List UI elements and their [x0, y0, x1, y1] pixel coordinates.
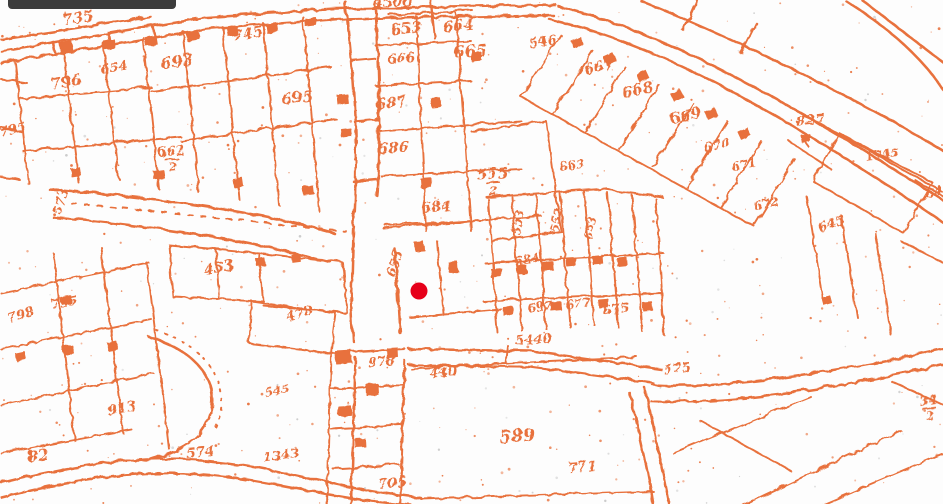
scan-speckle [504, 295, 506, 297]
scan-speckle [872, 170, 874, 172]
scan-speckle [13, 499, 15, 501]
scan-speckle [522, 70, 525, 73]
scan-speckle [723, 260, 725, 262]
scan-speckle [598, 247, 600, 249]
scan-speckle [184, 258, 185, 259]
scan-speckle [191, 487, 192, 488]
building-footprint [430, 97, 440, 106]
scan-speckle [725, 73, 726, 74]
building-footprint [70, 167, 80, 176]
building-footprint [704, 107, 716, 118]
scan-speckle [232, 253, 234, 255]
scan-speckle [676, 277, 678, 279]
scan-speckle [893, 402, 895, 404]
scan-speckle [312, 240, 313, 241]
scan-speckle [763, 417, 765, 419]
parcel-number-label: 664 [441, 15, 474, 36]
scan-speckle [762, 292, 765, 295]
scan-speckle [677, 481, 679, 483]
scan-speckle [288, 172, 289, 173]
scan-speckle [549, 53, 552, 56]
scan-speckle [686, 392, 688, 394]
scan-speckle [174, 273, 176, 275]
scan-speckle [422, 320, 425, 323]
parcel-number-label: 655 [383, 248, 406, 278]
cadastral-map-image[interactable]: 7357456936547967956954500653664665666546… [0, 0, 943, 504]
scan-speckle [78, 362, 80, 364]
scan-speckle [325, 113, 328, 116]
parcel-number: 669 [668, 103, 703, 127]
scan-speckle [364, 202, 366, 204]
scan-speckle [876, 290, 878, 292]
scan-speckle [277, 476, 280, 479]
parcel-number: 695 [280, 86, 313, 107]
scan-speckle [539, 222, 540, 223]
scan-speckle [761, 313, 762, 314]
parcel-number: 545 [263, 381, 290, 399]
scan-speckle [807, 64, 810, 67]
scan-speckle [55, 422, 58, 425]
parcel-number-label: 978 [367, 353, 395, 370]
scan-speckle [764, 47, 765, 48]
scan-speckle [481, 254, 483, 256]
scan-speckle [283, 270, 286, 273]
building-footprint [566, 257, 576, 266]
parcel-number-label: 545 [263, 381, 290, 399]
parcel-number: 677 [564, 294, 591, 311]
scan-speckle [659, 387, 661, 389]
scan-speckle [344, 422, 346, 424]
parcel-number: 453 [201, 255, 235, 278]
scan-speckle [167, 326, 168, 327]
scan-speckle [774, 367, 776, 369]
building-footprint [616, 256, 626, 265]
scan-speckle [675, 336, 677, 338]
scan-speckle [70, 103, 72, 105]
building-footprint [822, 296, 832, 305]
parcel-number-label: 675 [601, 300, 630, 319]
scan-speckle [574, 323, 577, 326]
parcel-number: 697 [526, 297, 553, 314]
parcel-number-label: 546 [528, 32, 557, 51]
scan-speckle [858, 22, 859, 23]
building-footprint [354, 437, 364, 446]
parcel-number: 575 [662, 359, 691, 378]
building-footprint [490, 267, 501, 277]
scan-speckle [756, 340, 758, 342]
scan-speckle [842, 3, 845, 6]
scan-speckle [45, 151, 46, 152]
scan-speckle [487, 372, 490, 375]
scan-speckle [339, 144, 342, 147]
building-footprint [185, 29, 198, 40]
scan-speckle [794, 178, 796, 180]
scan-speckle [320, 352, 322, 354]
scan-speckle [603, 353, 605, 355]
scan-speckle [147, 444, 148, 445]
scan-speckle [699, 461, 701, 463]
parcel-number: 553 [508, 208, 526, 235]
scan-speckle [674, 428, 676, 430]
scan-speckle [764, 69, 766, 71]
parcel-number-label: 795 [49, 293, 78, 312]
parcel-number-label: 453 [201, 255, 235, 278]
scan-speckle [622, 460, 624, 462]
scan-speckle [53, 160, 55, 162]
scan-speckle [35, 118, 36, 119]
scan-speckle [79, 277, 82, 280]
scan-speckle [588, 324, 589, 325]
scan-speckle [247, 403, 250, 406]
parcel-number: 675 [601, 300, 630, 319]
scan-speckle [440, 117, 442, 119]
scan-speckle [916, 214, 919, 217]
scan-speckle [103, 233, 105, 235]
scan-speckle [608, 262, 611, 265]
parcel-number-label: 672 [751, 194, 778, 213]
scan-speckle [334, 397, 336, 399]
scan-speckle [65, 154, 68, 157]
parcel-number-label: 913 [106, 398, 138, 419]
scan-speckle [237, 140, 240, 143]
scan-speckle [372, 42, 374, 44]
parcel-number-label: 663 [558, 156, 585, 174]
parcel-number: 589 [498, 424, 535, 447]
parcel-number-label: 82 [26, 445, 49, 466]
building-footprint [152, 169, 163, 178]
scan-speckle [819, 320, 821, 322]
scan-speckle [637, 240, 639, 242]
scan-speckle [459, 499, 461, 501]
parcel-number-label: 575 [662, 359, 691, 378]
scan-speckle [460, 281, 462, 283]
scan-speckle [820, 172, 822, 174]
scan-speckle [311, 423, 314, 426]
scan-speckle [939, 304, 940, 305]
scan-speckle [169, 455, 171, 457]
scan-speckle [658, 434, 660, 436]
scan-speckle [856, 67, 858, 69]
scan-speckle [881, 311, 882, 312]
parcel-number: 584 [513, 250, 540, 267]
scan-speckle [617, 203, 618, 204]
scan-speckle [49, 294, 50, 295]
scan-speckle [474, 435, 476, 437]
scan-speckle [652, 80, 654, 82]
scan-speckle [140, 280, 142, 282]
scan-speckle [276, 414, 279, 417]
parcel-number-denominator: 2 [487, 184, 498, 200]
scan-speckle [845, 346, 847, 348]
scan-speckle [300, 179, 302, 181]
scan-speckle [753, 12, 755, 14]
scan-speckle [484, 81, 486, 83]
map-viewport[interactable]: 7357456936547967956954500653664665666546… [0, 0, 943, 504]
scan-speckle [214, 168, 216, 170]
scan-speckle [596, 175, 598, 177]
scan-speckle [296, 240, 298, 242]
scan-speckle [652, 220, 655, 223]
parcel-number: 666 [387, 50, 415, 67]
scan-speckle [186, 433, 188, 435]
scan-speckle [681, 198, 683, 200]
parcel-number: 670 [701, 135, 731, 155]
scan-speckle [867, 93, 869, 95]
scan-speckle [22, 152, 23, 153]
scan-speckle [569, 405, 570, 406]
scan-speckle [594, 84, 596, 86]
parcel-number-label: 695 [280, 86, 313, 107]
scan-speckle [565, 74, 568, 77]
parcel-number-label: 589 [498, 424, 535, 447]
scan-speckle [681, 169, 683, 171]
scan-speckle [706, 502, 708, 504]
scan-speckle [279, 437, 281, 439]
scan-speckle [612, 104, 614, 106]
scan-speckle [482, 484, 484, 486]
scan-speckle [124, 146, 126, 148]
scan-speckle [791, 119, 793, 121]
scan-speckle [507, 338, 509, 340]
scan-speckle [513, 386, 516, 389]
scan-speckle [83, 135, 86, 138]
parcel-number: 796 [49, 70, 83, 92]
scan-speckle [81, 262, 83, 264]
scan-speckle [278, 79, 279, 80]
scan-speckle [620, 192, 621, 193]
scan-speckle [473, 265, 474, 266]
scan-speckle [475, 498, 476, 499]
scan-speckle [2, 358, 4, 360]
scan-speckle [794, 73, 796, 75]
scan-speckle [87, 450, 89, 452]
scan-speckle [362, 139, 365, 142]
scan-speckle [674, 196, 675, 197]
scan-speckle [824, 71, 825, 72]
scan-speckle [609, 383, 611, 385]
scan-speckle [580, 99, 582, 101]
scan-speckle [541, 184, 543, 186]
parcel-number-label: 645 [815, 212, 846, 235]
parcel-number: 654 [99, 58, 128, 77]
scan-speckle [655, 32, 657, 34]
scan-speckle [204, 379, 205, 380]
scan-speckle [262, 106, 265, 109]
scan-speckle [831, 163, 832, 164]
scan-speckle [927, 234, 929, 236]
scan-speckle [604, 500, 606, 502]
scan-speckle [27, 183, 30, 186]
scan-speckle [376, 429, 378, 431]
scan-speckle [299, 235, 302, 238]
scan-speckle [830, 169, 832, 171]
scan-speckle [617, 465, 618, 466]
parcel-number-label: 574 [184, 443, 215, 461]
scan-speckle [220, 308, 221, 309]
scan-speckle [878, 457, 880, 459]
scan-speckle [432, 328, 433, 329]
parcel-number-label: 5440 [514, 331, 551, 348]
scan-speckle [187, 184, 190, 187]
scan-speckle [814, 486, 816, 488]
scan-speckle [495, 119, 496, 120]
scan-speckle [623, 434, 624, 435]
scan-speckle [729, 307, 730, 308]
scan-speckle [121, 290, 122, 291]
scan-speckle [474, 407, 475, 408]
scan-speckle [738, 50, 739, 51]
scan-speckle [804, 169, 805, 170]
scan-speckle [130, 485, 132, 487]
scan-speckle [35, 266, 36, 267]
scan-speckle [555, 477, 558, 480]
scan-speckle [692, 124, 695, 127]
parcel-number-label: 687 [374, 91, 408, 112]
scan-speckle [877, 307, 879, 309]
scan-speckle [113, 126, 116, 129]
parcel-number-label: 573 [50, 186, 72, 216]
scan-speckle [40, 198, 41, 199]
scan-speckle [461, 195, 462, 196]
scan-speckle [627, 56, 629, 58]
scan-speckle [218, 93, 220, 95]
scan-speckle [664, 468, 665, 469]
scan-speckle [927, 101, 929, 103]
parcel-number-label: 662 [157, 143, 185, 160]
scan-speckle [847, 330, 849, 332]
scan-speckle [5, 196, 6, 197]
scan-speckle [276, 286, 278, 288]
scan-speckle [75, 114, 77, 116]
scan-speckle [601, 345, 603, 347]
scan-speckle [486, 238, 489, 241]
scan-speckle [695, 4, 696, 5]
scan-speckle [696, 141, 698, 143]
parcel-number: 546 [528, 32, 557, 51]
scan-speckle [717, 288, 719, 290]
scan-speckle [164, 42, 166, 44]
scan-speckle [898, 391, 900, 393]
parcel-number: 705 [376, 474, 407, 492]
scan-noise-layer [1, 1, 943, 504]
scan-speckle [349, 120, 352, 123]
map-marker[interactable] [411, 283, 428, 300]
scan-speckle [756, 178, 758, 180]
scan-speckle [686, 320, 688, 322]
scan-speckle [254, 206, 256, 208]
scan-speckle [23, 27, 24, 28]
parcel-number-label: 670 [701, 135, 731, 155]
building-footprint [365, 383, 378, 394]
parcel-number: 4500 [372, 0, 412, 11]
scan-speckle [241, 450, 242, 451]
scan-speckle [756, 258, 759, 261]
scan-speckle [319, 137, 321, 139]
scan-speckle [678, 397, 680, 399]
scan-speckle [338, 435, 340, 437]
scan-speckle [599, 439, 602, 442]
scan-speckle [919, 171, 921, 173]
fraction-bar [485, 182, 499, 183]
scan-speckle [216, 121, 219, 124]
scan-speckle [153, 403, 155, 405]
scan-speckle [676, 45, 678, 47]
building-footprint [670, 89, 682, 100]
parcel-number-label: 677 [564, 294, 591, 311]
scan-speckle [611, 76, 613, 78]
scan-speckle [485, 78, 488, 81]
parcel-number: 664 [441, 15, 474, 36]
scan-speckle [893, 196, 895, 198]
scan-speckle [549, 446, 552, 449]
building-footprint [144, 34, 156, 45]
scan-speckle [508, 171, 510, 173]
scan-speckle [806, 433, 809, 436]
scan-speckle [106, 116, 107, 117]
scan-speckle [227, 371, 229, 373]
scan-speckle [713, 184, 716, 187]
scan-speckle [547, 499, 550, 502]
scan-speckle [269, 228, 270, 229]
scan-speckle [90, 355, 91, 356]
scan-speckle [642, 242, 643, 243]
scan-speckle [388, 37, 390, 39]
scan-speckle [215, 444, 218, 447]
scan-speckle [912, 251, 914, 253]
scan-speckle [938, 27, 941, 30]
scan-speckle [781, 257, 782, 258]
scan-speckle [584, 385, 587, 388]
scan-speckle [649, 132, 650, 133]
scan-speckle [32, 498, 34, 500]
scan-speckle [556, 448, 558, 450]
scan-speckle [727, 21, 728, 22]
scan-speckle [274, 346, 275, 347]
scan-speckle [399, 111, 400, 112]
scan-speckle [285, 79, 287, 81]
building-footprint [302, 185, 313, 194]
scan-speckle [18, 26, 19, 27]
building-footprint [570, 36, 582, 47]
scan-speckle [100, 35, 102, 37]
scan-speckle [865, 256, 867, 258]
scan-speckle [31, 395, 33, 397]
scan-speckle [864, 99, 866, 101]
scan-speckle [332, 156, 333, 157]
scan-speckle [190, 494, 191, 495]
parcel-number-label: 684 [421, 198, 451, 216]
scan-speckle [854, 480, 856, 482]
parcel-number: 795 [49, 293, 78, 312]
scan-speckle [210, 279, 211, 280]
scan-speckle [508, 468, 511, 471]
scan-speckle [187, 124, 188, 125]
scan-speckle [572, 250, 573, 251]
scan-speckle [61, 384, 63, 386]
scan-speckle [81, 343, 83, 345]
scan-speckle [171, 312, 173, 314]
scan-speckle [580, 227, 581, 228]
scan-speckle [439, 20, 440, 21]
scan-speckle [760, 317, 762, 319]
scan-speckle [752, 261, 755, 264]
scan-speckle [874, 354, 876, 356]
scan-speckle [488, 54, 490, 56]
parcel-number: 978 [367, 353, 395, 370]
scan-speckle [324, 304, 326, 306]
scan-speckle [171, 389, 173, 391]
scan-speckle [234, 473, 236, 475]
